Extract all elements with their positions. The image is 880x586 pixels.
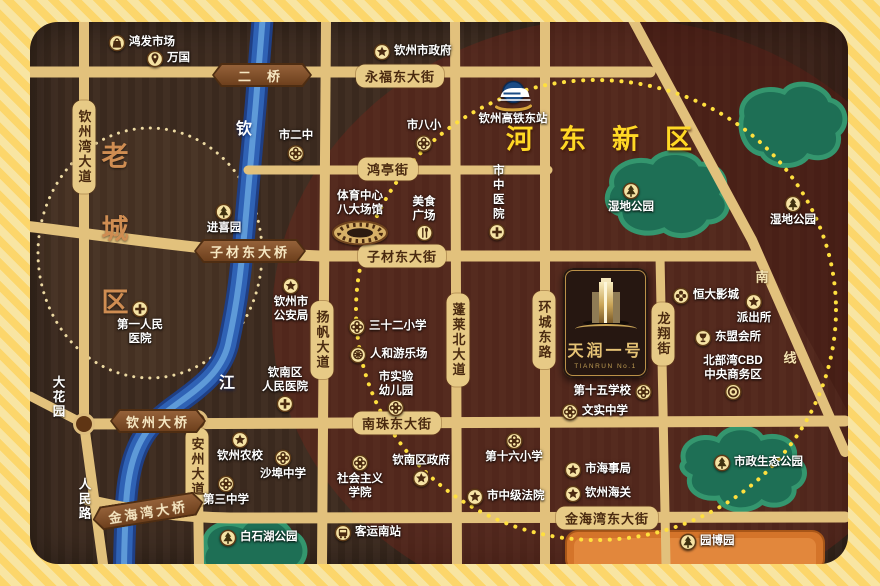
cup-icon: [694, 329, 712, 347]
star-icon: [412, 469, 430, 487]
poi-star: 派出所: [737, 293, 772, 326]
poi-hospital: 市中医院: [488, 164, 506, 241]
poi-label: 北部湾CBD 中央商务区: [703, 355, 762, 382]
poi-label: 沙埠中学: [260, 468, 306, 482]
poi-label: 社会主义 学院: [337, 473, 383, 500]
poi-target: 北部湾CBD 中央商务区: [703, 355, 762, 401]
road-name-plate: 鸿亭街: [358, 158, 418, 181]
school-icon: [634, 383, 652, 401]
bridge-banner-label: 二桥: [214, 65, 310, 85]
bridge-banner-label: 金海湾大桥: [93, 493, 203, 530]
poi-label: 湿地公园: [608, 201, 654, 215]
place-v-label: 大花园: [49, 375, 68, 419]
road-name-plate: 钦州湾大道: [73, 101, 96, 194]
star-icon: [564, 461, 582, 479]
poi-label: 万国: [167, 52, 190, 66]
logo-divider: [575, 324, 637, 334]
school-icon: [415, 134, 433, 152]
bridge-banner-label: 子材东大桥: [196, 241, 304, 261]
bus-icon: [334, 524, 352, 542]
star-icon: [745, 293, 763, 311]
poi-bus: 客运南站: [334, 524, 401, 542]
poi-tree: 湿地公园: [608, 182, 654, 215]
poi-school: 市实验 幼儿园: [379, 371, 414, 417]
poi-label: 第十五学校: [574, 385, 632, 399]
market-icon: [108, 34, 126, 52]
tree-icon: [713, 454, 731, 472]
poi-pin: 万国: [146, 50, 190, 68]
poi-cup: 东盟会所: [694, 329, 761, 347]
rail-label: 线: [783, 348, 796, 367]
poi-label: 钦州市政府: [394, 45, 452, 59]
poi-label: 市八小: [407, 119, 442, 133]
project-name-en: TIANRUN No.1: [574, 363, 636, 370]
bridge-banner: 二桥: [212, 63, 312, 87]
bridge-banner: 钦州大桥: [110, 409, 206, 433]
school-icon: [287, 144, 305, 162]
poi-label: 美食 广场: [413, 196, 436, 223]
poi-tree: 园博园: [679, 533, 735, 551]
poi-school: 三十二小学: [348, 318, 427, 336]
poi-ferris: 人和游乐场: [349, 346, 428, 364]
hospital-icon: [488, 223, 506, 241]
hospital-icon: [131, 300, 149, 318]
poi-stadium: 体育中心 八大场馆: [329, 190, 391, 248]
tree-icon: [215, 203, 233, 221]
road-name-plate: 蓬莱北大道: [447, 294, 470, 387]
poi-label: 第三中学: [203, 494, 249, 508]
poi-tree: 市政生态公园: [713, 454, 803, 472]
poi-label: 钦南区 人民医院: [262, 367, 308, 394]
poi-label: 钦州海关: [585, 487, 631, 501]
road-name-plate: 环城东路: [533, 291, 556, 369]
poi-star: 钦南区政府: [392, 454, 450, 487]
school-icon: [561, 403, 579, 421]
poi-label: 派出所: [737, 312, 772, 326]
school-icon: [274, 449, 292, 467]
district-label: 河东新区: [506, 118, 718, 157]
star-icon: [231, 431, 249, 449]
poi-label: 恒大影城: [693, 289, 739, 303]
poi-label: 客运南站: [355, 526, 401, 540]
poi-label: 市中级法院: [487, 490, 545, 504]
project-building-icon: [580, 276, 632, 326]
poi-school: 第十五学校: [574, 383, 653, 401]
poi-school: 社会主义 学院: [337, 454, 383, 500]
star-icon: [564, 485, 582, 503]
river-label: 江: [219, 369, 235, 393]
map-overlay: 天润一号 TIANRUN No.1 永福东大街鸿亭街子材东大街南珠东大街金海湾东…: [30, 22, 848, 564]
project-logo: 天润一号 TIANRUN No.1: [563, 268, 648, 378]
poi-star: 市中级法院: [466, 488, 545, 506]
poi-school: 文实中学: [561, 403, 628, 421]
school-icon: [348, 318, 366, 336]
school-icon: [387, 399, 405, 417]
rail-label: 南: [755, 267, 768, 286]
poi-school: 第十六小学: [485, 432, 543, 465]
poi-tree: 白石湖公园: [219, 529, 298, 547]
star-icon: [282, 277, 300, 295]
road-junction-node: [73, 413, 95, 435]
poi-label: 市中医院: [490, 164, 504, 222]
poi-label: 市实验 幼儿园: [379, 371, 414, 398]
poi-label: 文实中学: [582, 405, 628, 419]
poi-school: 第三中学: [203, 475, 249, 508]
oldtown-label: 老城区: [94, 142, 133, 361]
ferris-icon: [349, 346, 367, 364]
poi-label: 园博园: [700, 535, 735, 549]
star-icon: [466, 488, 484, 506]
river-label: 钦: [236, 115, 252, 139]
poi-label: 钦州农校: [217, 450, 263, 464]
poi-label: 体育中心 八大场馆: [337, 190, 383, 217]
school-icon: [217, 475, 235, 493]
school-icon: [505, 432, 523, 450]
target-icon: [724, 383, 742, 401]
tree-icon: [622, 182, 640, 200]
poi-star: 钦州农校: [217, 431, 263, 464]
location-map: 天润一号 TIANRUN No.1 永福东大街鸿亭街子材东大街南珠东大街金海湾东…: [0, 0, 880, 586]
poi-school: 市二中: [279, 129, 314, 162]
star-icon: [373, 43, 391, 61]
poi-label: 市海事局: [585, 463, 631, 477]
poi-label: 湿地公园: [770, 214, 816, 228]
poi-label: 第十六小学: [485, 451, 543, 465]
pin-icon: [146, 50, 164, 68]
bridge-banner: 子材东大桥: [194, 239, 306, 263]
bridge-banner-label: 钦州大桥: [112, 411, 204, 431]
road-name-plate: 龙翔街: [652, 303, 675, 366]
poi-food: 美食 广场: [413, 196, 436, 242]
poi-school: 市八小: [407, 119, 442, 152]
poi-label: 钦南区政府: [392, 454, 450, 468]
map-canvas: 天润一号 TIANRUN No.1 永福东大街鸿亭街子材东大街南珠东大街金海湾东…: [30, 22, 848, 564]
tree-icon: [219, 529, 237, 547]
poi-hospital: 钦南区 人民医院: [262, 367, 308, 413]
stadium-icon: [329, 218, 391, 248]
tree-icon: [784, 195, 802, 213]
poi-star: 钦州海关: [564, 485, 631, 503]
bridge-banner: 金海湾大桥: [91, 490, 205, 531]
poi-star: 钦州市政府: [373, 43, 452, 61]
poi-label: 人和游乐场: [370, 348, 428, 362]
school-icon: [351, 454, 369, 472]
poi-label: 白石湖公园: [240, 531, 298, 545]
place-v-label: 人民路: [75, 477, 94, 521]
hospital-icon: [276, 395, 294, 413]
train-icon: [490, 80, 536, 112]
poi-label: 市政生态公园: [734, 456, 803, 470]
poi-cinema: 恒大影城: [672, 287, 739, 305]
poi-label: 市二中: [279, 129, 314, 143]
poi-label: 东盟会所: [715, 331, 761, 345]
poi-label: 钦州市 公安局: [274, 296, 309, 323]
road-name-plate: 扬帆大道: [311, 301, 334, 379]
poi-school: 沙埠中学: [260, 449, 306, 482]
poi-label: 三十二小学: [369, 320, 427, 334]
road-name-plate: 金海湾东大街: [556, 507, 658, 530]
poi-star: 钦州市 公安局: [274, 277, 309, 323]
road-name-plate: 永福东大街: [356, 65, 444, 88]
food-icon: [415, 224, 433, 242]
cinema-icon: [672, 287, 690, 305]
poi-star: 市海事局: [564, 461, 631, 479]
poi-tree: 湿地公园: [770, 195, 816, 228]
poi-label: 进喜园: [207, 222, 242, 236]
project-name: 天润一号: [567, 337, 643, 361]
poi-tree: 进喜园: [207, 203, 242, 236]
poi-label: 鸿发市场: [129, 36, 175, 50]
tree-icon: [679, 533, 697, 551]
